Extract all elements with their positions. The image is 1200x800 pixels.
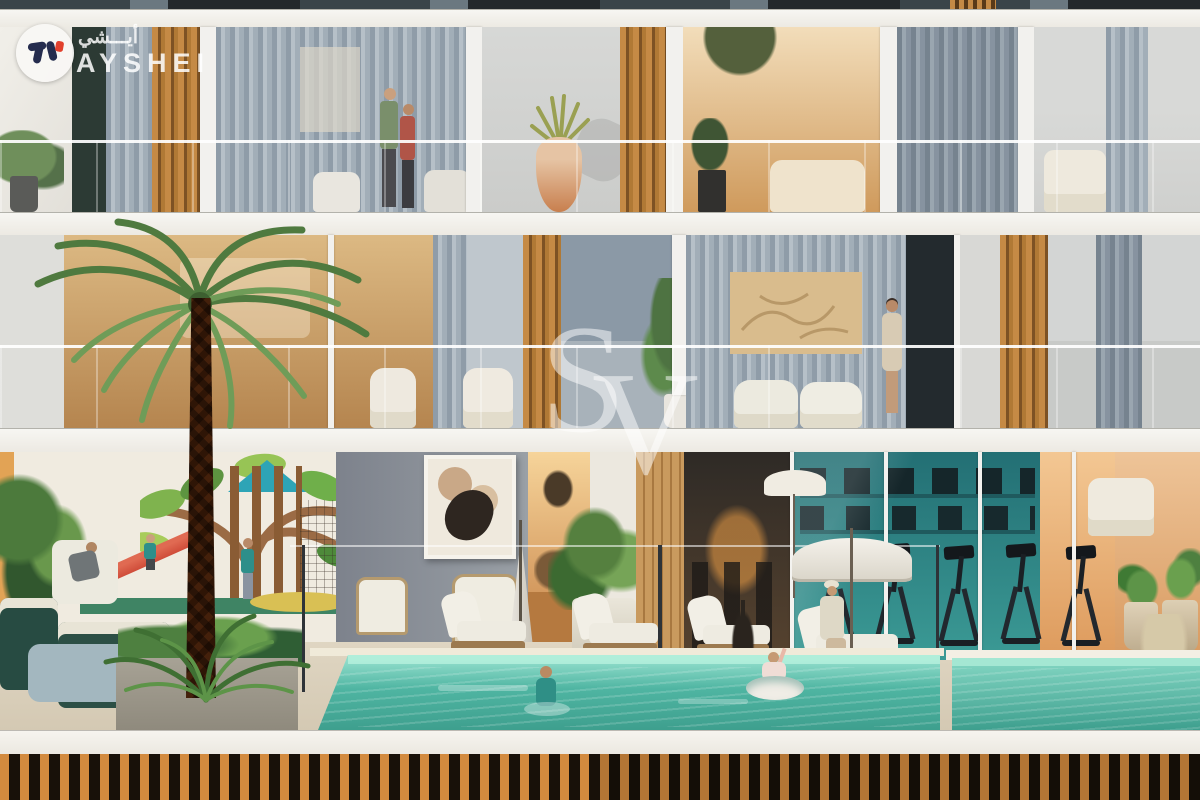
rattan-chair-1 [356, 577, 408, 635]
lounge-person [64, 542, 104, 594]
kid-on-slide [142, 534, 158, 570]
pool-coping [310, 648, 944, 656]
right-plant-2-leaves [1158, 548, 1200, 604]
ayshei-logo-mark-icon [16, 24, 74, 82]
slat-fence-shade [600, 754, 1200, 800]
pool-umbrella-pole [850, 528, 853, 658]
hanging-plant [700, 27, 780, 79]
pool-edge-band [0, 730, 1200, 755]
upper-rail-stanchions [0, 140, 1200, 212]
upper-interior-art [300, 47, 360, 132]
top-sliver-wood-accent [950, 0, 996, 9]
logo-arabic-text: أيـــشي [78, 26, 138, 49]
monogram-letter-v: V [592, 350, 699, 498]
swimming-pool-water [318, 655, 940, 730]
small-umbrella-pole [793, 494, 795, 598]
small-umbrella-canopy [764, 470, 826, 496]
right-white-chair [1088, 478, 1154, 536]
kid-standing [238, 538, 256, 600]
rendering-canvas: أيـــشي AYSHEI S V [0, 0, 1200, 800]
palm-base-ferns [96, 596, 316, 708]
roof-slab [0, 9, 1200, 29]
ayshei-logo-badge [16, 24, 74, 82]
gold-relief-art [730, 272, 862, 354]
swimmer-kid [528, 664, 564, 724]
spa-pool-water [952, 658, 1200, 730]
kid-on-float [744, 652, 806, 708]
abstract-art-frame [424, 455, 516, 559]
logo-latin-text: AYSHEI [76, 48, 210, 79]
top-floor-sliver [0, 0, 1200, 9]
